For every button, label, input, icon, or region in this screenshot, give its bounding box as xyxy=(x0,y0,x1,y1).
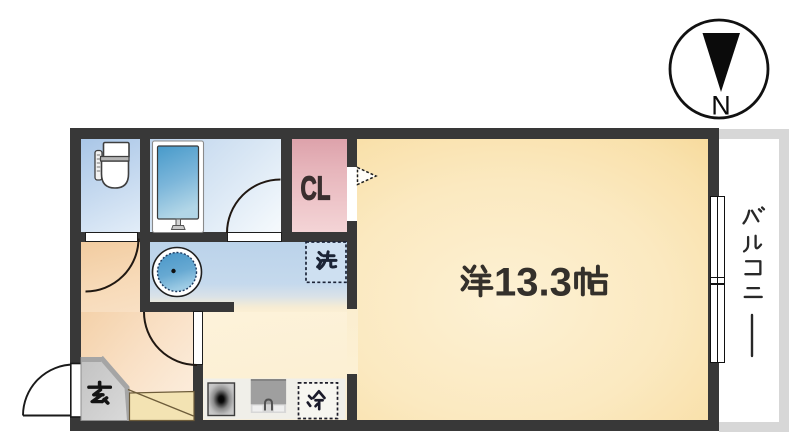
svg-text:CL: CL xyxy=(301,169,331,206)
svg-text:13.3: 13.3 xyxy=(494,261,572,305)
